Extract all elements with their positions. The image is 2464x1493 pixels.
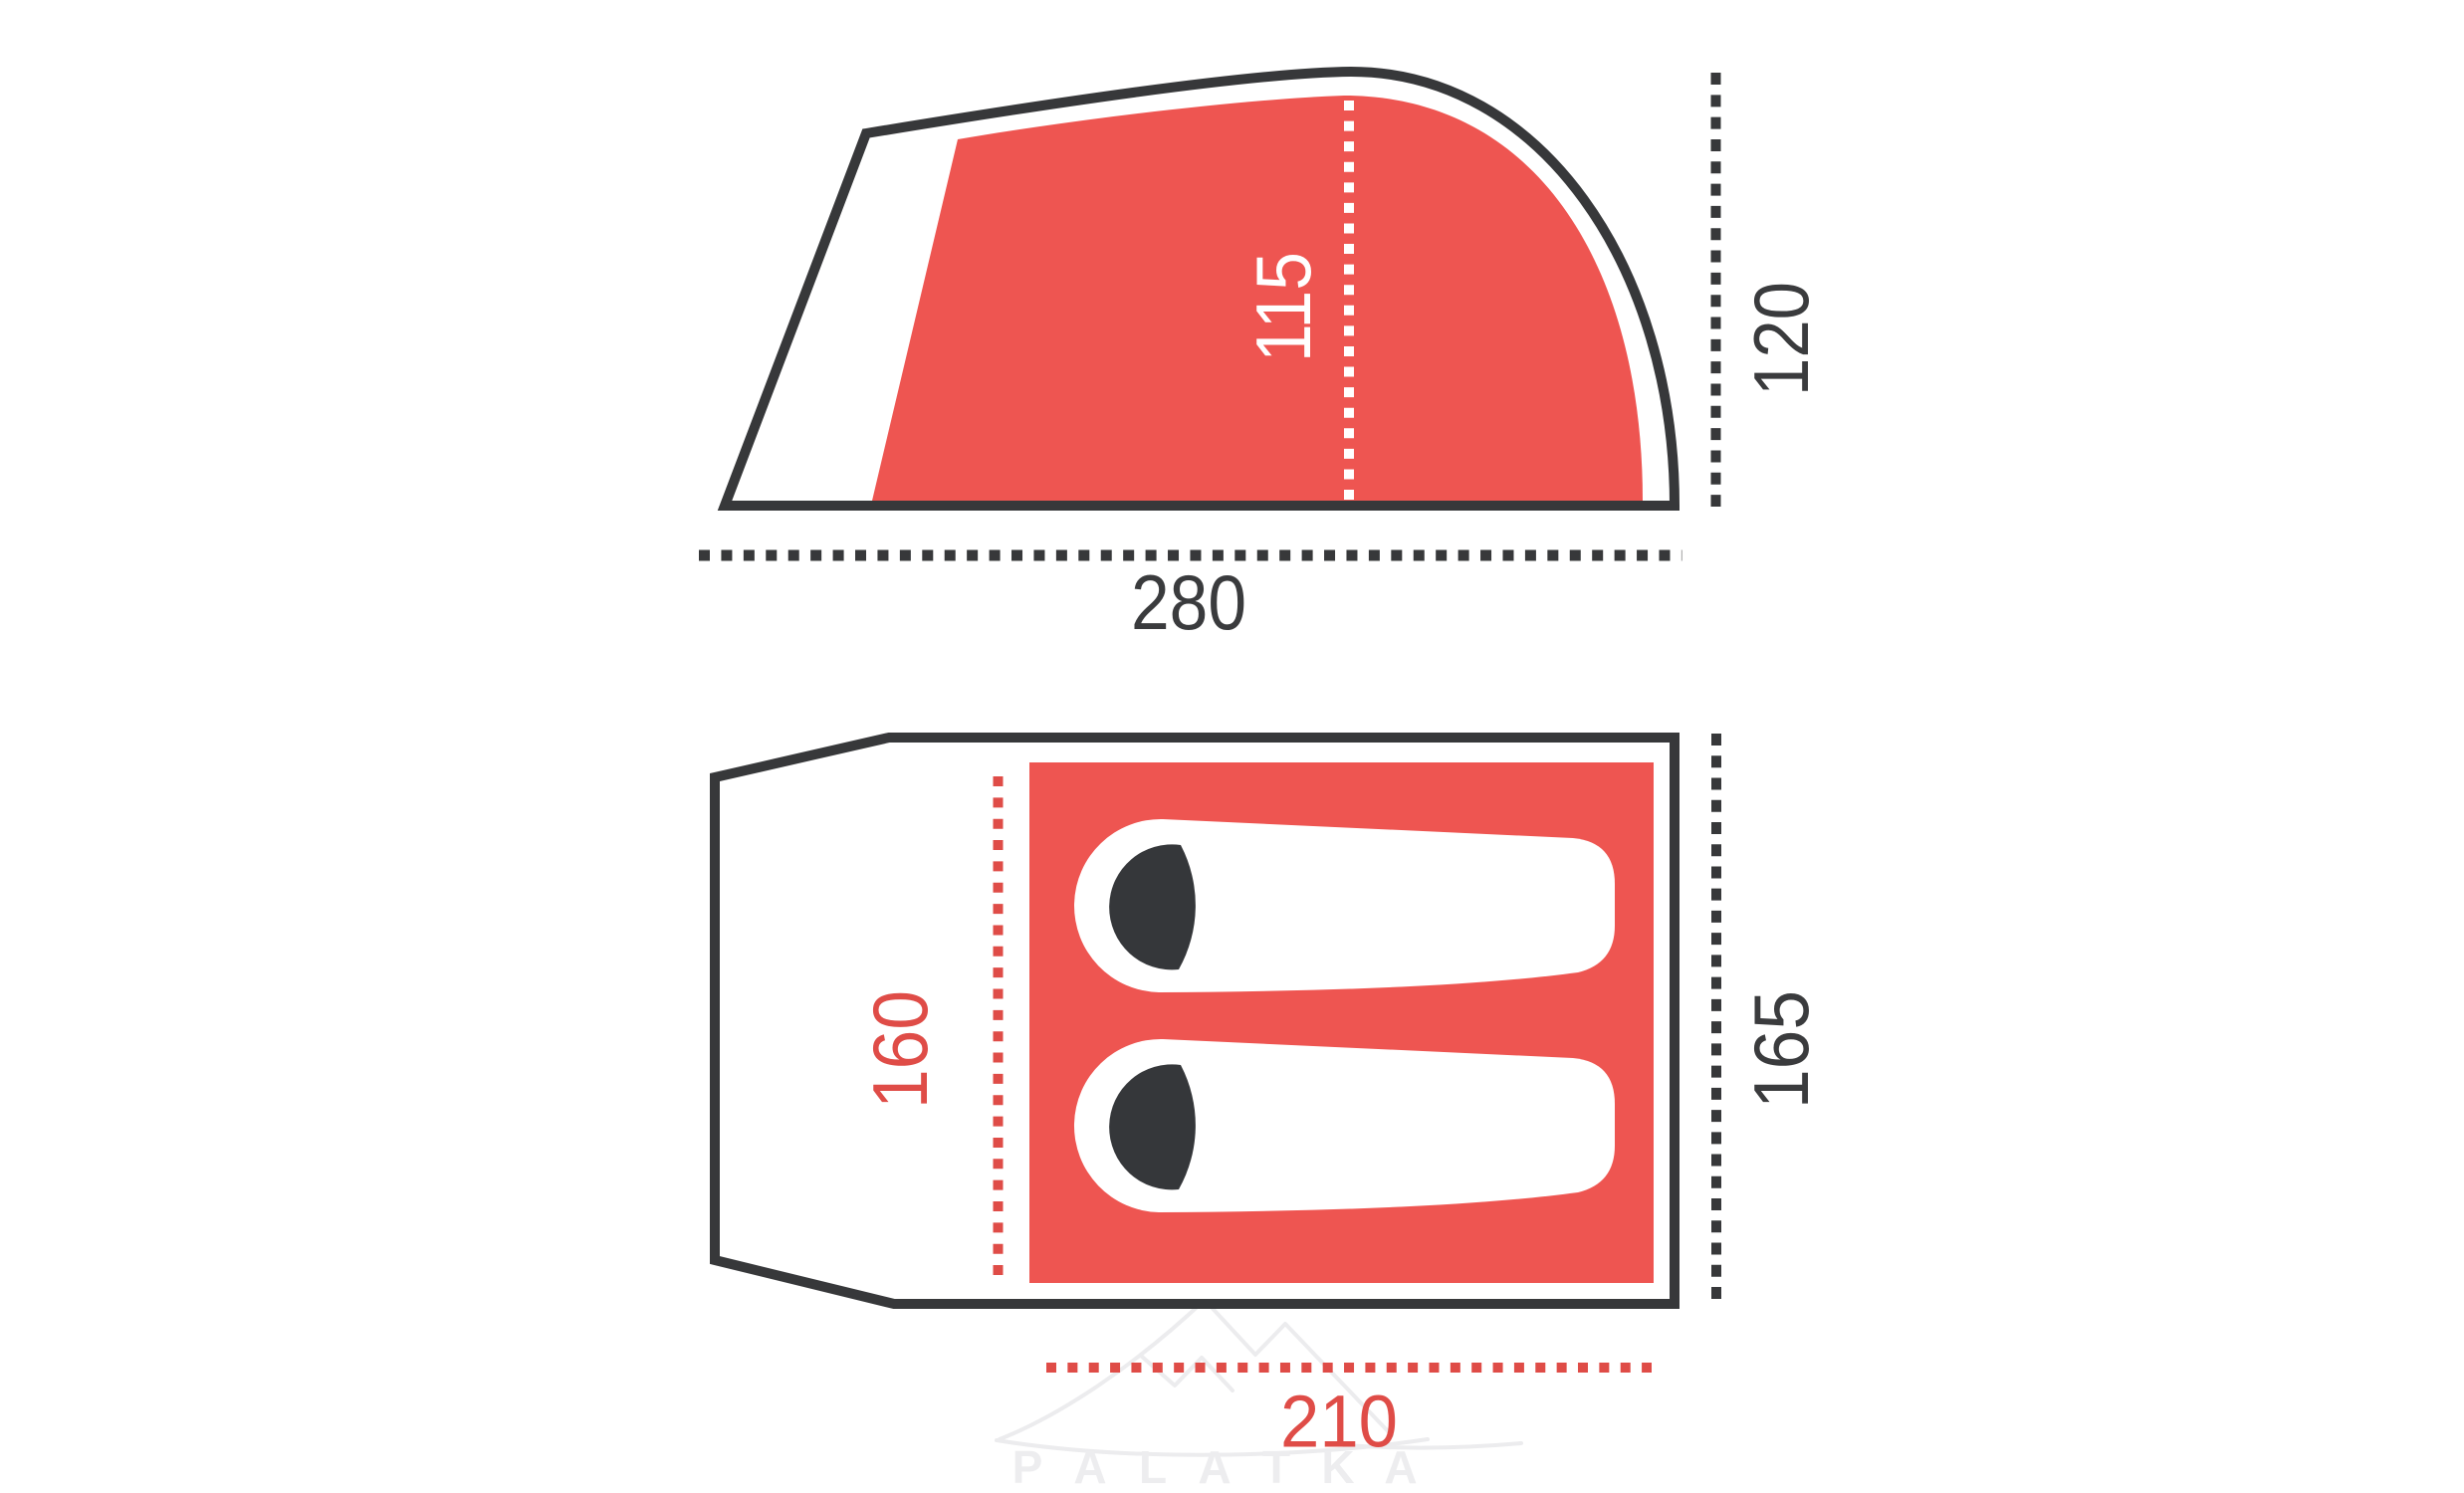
svg-text:A: A xyxy=(1198,1441,1231,1493)
svg-text:165: 165 xyxy=(1737,990,1825,1109)
svg-text:A: A xyxy=(1073,1441,1106,1493)
svg-text:120: 120 xyxy=(1737,282,1825,396)
svg-text:115: 115 xyxy=(1239,252,1327,362)
svg-text:P: P xyxy=(1012,1441,1043,1493)
svg-text:160: 160 xyxy=(856,990,944,1109)
svg-text:210: 210 xyxy=(1280,1381,1398,1463)
svg-text:L: L xyxy=(1139,1441,1167,1493)
svg-text:280: 280 xyxy=(1131,558,1246,646)
